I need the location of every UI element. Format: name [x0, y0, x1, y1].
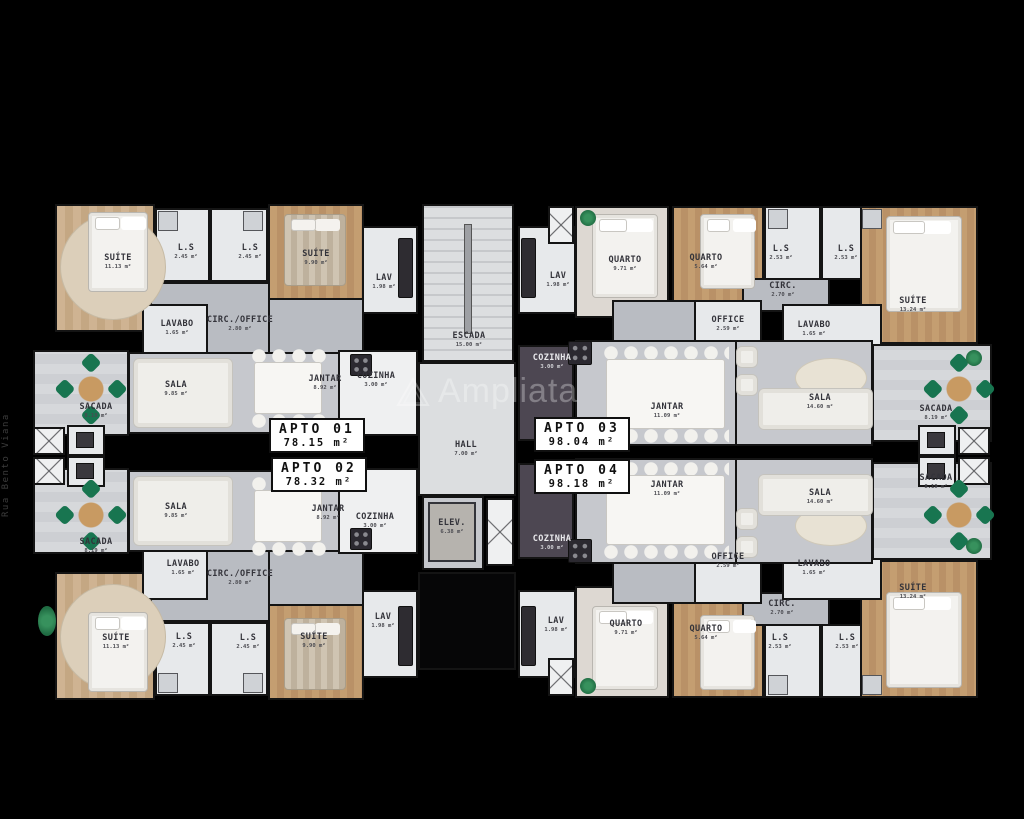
apto-03-label: APTO 03 [544, 421, 620, 436]
stove-icon [350, 354, 372, 376]
washer [398, 238, 413, 298]
plant-icon [38, 606, 56, 636]
floor-plan-canvas: SUÍTE11.13 m² L.S2.45 m² L.S2.45 m² SUÍT… [0, 0, 1024, 819]
sofa [133, 476, 233, 546]
room-office-nook-a1 [268, 298, 364, 354]
shaft-icon [548, 206, 574, 244]
apto-04-area: 98.18 m² [544, 478, 620, 490]
ac-unit [927, 432, 945, 448]
armchair [736, 508, 758, 530]
washer [398, 606, 413, 666]
apto-03-area: 98.04 m² [544, 436, 620, 448]
ac-unit [927, 463, 945, 479]
shower [768, 209, 788, 229]
shower [158, 211, 178, 231]
bed [88, 212, 148, 292]
apto-03-tag: APTO 03 98.04 m² [534, 417, 630, 452]
washer [521, 238, 536, 298]
stove-icon [350, 528, 372, 550]
bed [592, 214, 658, 298]
shower [158, 673, 178, 693]
shower [243, 673, 263, 693]
bed [700, 615, 755, 690]
bed [592, 606, 658, 690]
shower [243, 211, 263, 231]
stove-icon [568, 341, 592, 365]
armchair [736, 374, 758, 396]
sofa [133, 358, 233, 428]
armchair [736, 346, 758, 368]
apto-04-tag: APTO 04 98.18 m² [534, 459, 630, 494]
apto-01-area: 78.15 m² [279, 437, 355, 449]
washer [521, 606, 536, 666]
apto-01-label: APTO 01 [279, 422, 355, 437]
room-escada [422, 204, 514, 362]
bed [284, 618, 346, 690]
bed [886, 592, 962, 688]
ac-unit [76, 432, 94, 448]
plant-icon [966, 350, 982, 366]
shower [862, 675, 882, 695]
room-office-nook-a2 [268, 550, 364, 606]
bed [700, 214, 755, 289]
room-lavabo-a1 [142, 304, 208, 354]
bed [284, 214, 346, 286]
ac-shaft-icon [33, 457, 65, 485]
bed [88, 612, 148, 692]
apto-04-label: APTO 04 [544, 463, 620, 478]
room-hall [418, 362, 516, 496]
apto-01-tag: APTO 01 78.15 m² [269, 418, 365, 453]
plant-icon [580, 210, 596, 226]
apto-02-area: 78.32 m² [281, 476, 357, 488]
room-lavabo-a2 [142, 550, 208, 600]
street-name-label: Rua Bento Viana [1, 390, 11, 540]
plant-icon [580, 678, 596, 694]
stove-icon [568, 539, 592, 563]
dining-set [246, 348, 330, 428]
core-void [418, 572, 516, 670]
bed [886, 216, 962, 312]
sofa [758, 474, 873, 516]
shaft-icon [486, 498, 514, 566]
ac-shaft-icon [33, 427, 65, 455]
apto-02-tag: APTO 02 78.32 m² [271, 457, 367, 492]
apto-02-label: APTO 02 [281, 461, 357, 476]
elevator-cab [428, 502, 476, 562]
shaft-icon [548, 658, 574, 696]
sofa [758, 388, 873, 430]
armchair [736, 536, 758, 558]
dining-table [254, 490, 322, 542]
shower [862, 209, 882, 229]
plant-icon [966, 538, 982, 554]
shower [768, 675, 788, 695]
dining-table [254, 362, 322, 414]
ac-shaft-icon [958, 427, 990, 455]
